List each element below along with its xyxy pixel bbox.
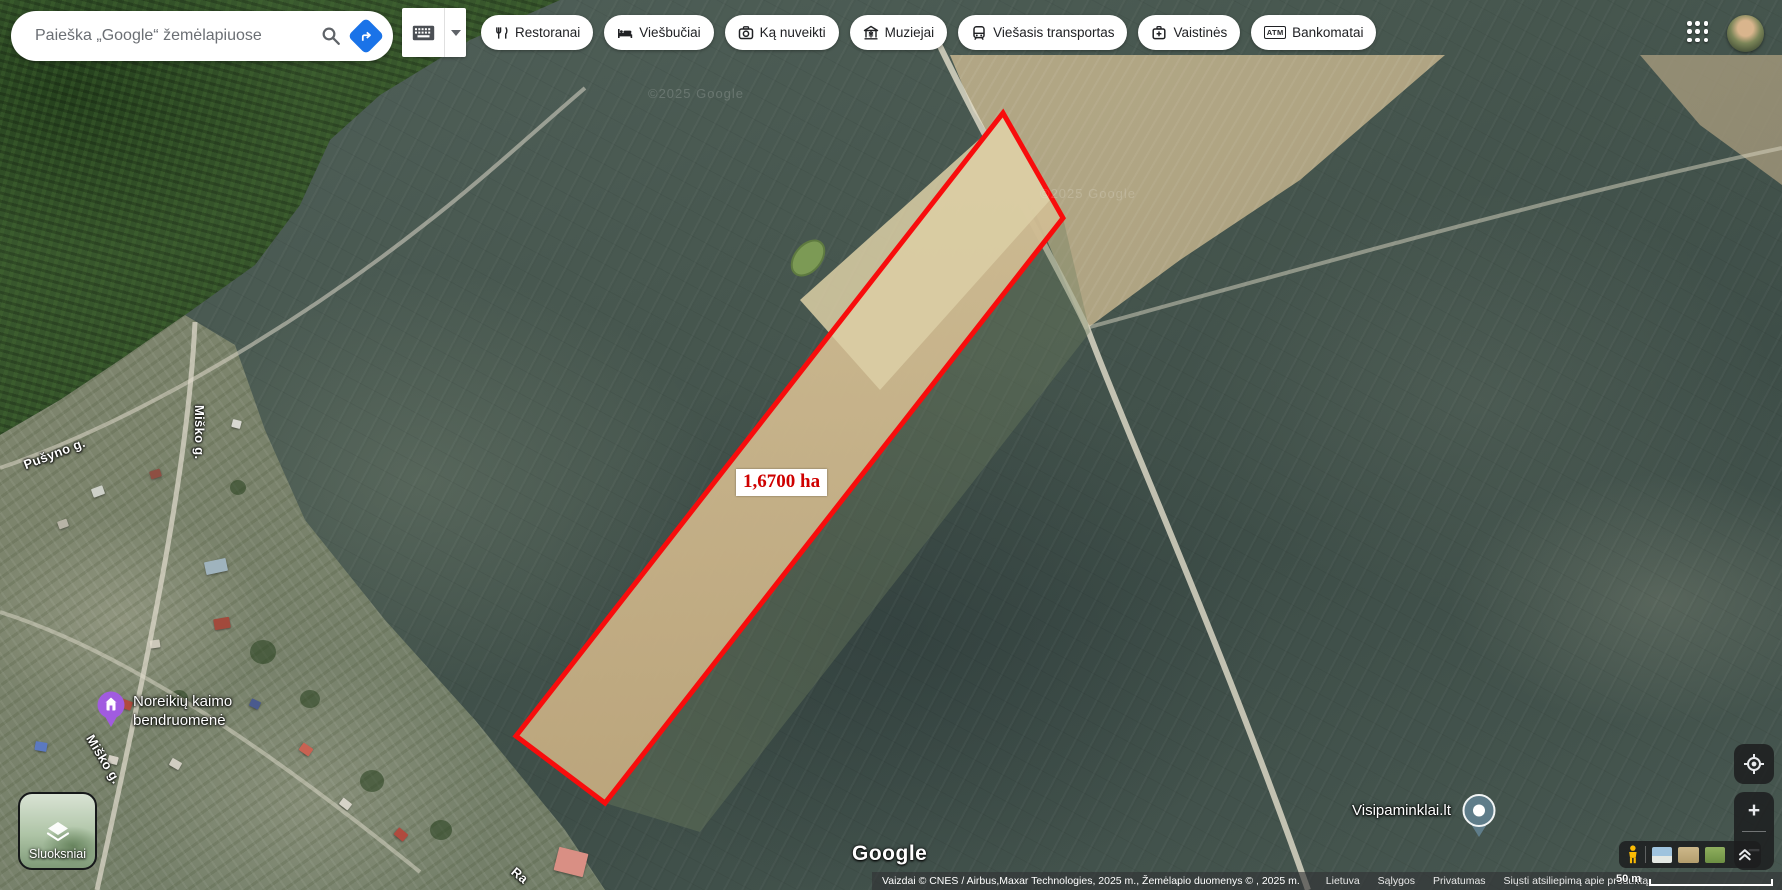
directions-button[interactable]: [348, 18, 385, 55]
chip-label: Viešasis transportas: [993, 25, 1114, 40]
keyboard-icon: [412, 25, 435, 41]
road-branch: [1086, 148, 1782, 328]
imagery-toolbar: [1619, 841, 1761, 868]
pharmacy-icon: [1151, 25, 1167, 41]
scale-bar: [1649, 879, 1773, 886]
parcel-area-label: 1,6700 ha: [736, 469, 827, 496]
chevron-down-icon: [451, 30, 461, 36]
search-bar[interactable]: Paieška „Google“ žemėlapiuose: [11, 11, 393, 61]
google-maps-app: ©2025 Google ©2025 Google 1,6700 ha Pušy…: [0, 0, 1782, 890]
apps-grid-icon: [1704, 38, 1709, 43]
chip-label: Viešbučiai: [639, 25, 700, 40]
svg-text:M: M: [868, 32, 873, 38]
keyboard-tool: [402, 8, 466, 57]
google-logo: Google: [852, 842, 927, 866]
my-location-icon: [1743, 753, 1765, 775]
chip-hotels[interactable]: Viešbučiai: [604, 15, 713, 50]
place-pin-icon[interactable]: [1460, 793, 1498, 839]
search-button[interactable]: [309, 26, 353, 46]
apps-grid-icon: [1687, 38, 1692, 43]
community-pin-icon[interactable]: [96, 691, 126, 729]
chip-museums[interactable]: M Muziejai: [850, 15, 948, 50]
chip-things-to-do[interactable]: Ką nuveikti: [725, 15, 839, 50]
search-input[interactable]: Paieška „Google“ žemėlapiuose: [11, 27, 309, 45]
poi-noreikiu[interactable]: [96, 691, 126, 734]
attribution-bar: Vaizdai © CNES / Airbus,Maxar Technologi…: [872, 872, 1782, 890]
apps-grid-icon: [1695, 21, 1700, 26]
poi-noreikiu-line2: bendruomenė: [133, 711, 232, 730]
directions-icon: [358, 28, 374, 44]
keyboard-button[interactable]: [402, 8, 445, 57]
imagery-attribution: Vaizdai © CNES / Airbus,Maxar Technologi…: [882, 875, 1300, 887]
road-misko: [97, 322, 195, 890]
scale-label: 50 m: [1616, 873, 1641, 885]
footer-link-privacy[interactable]: Privatumas: [1433, 875, 1486, 887]
chip-label: Muziejai: [885, 25, 935, 40]
apps-grid-icon: [1704, 21, 1709, 26]
restaurant-icon: [494, 25, 509, 41]
my-location-button[interactable]: [1734, 744, 1774, 784]
parcel-pond: [785, 234, 831, 281]
map-watermark: ©2025 Google: [1040, 186, 1136, 201]
road-forest-edge: [0, 88, 585, 468]
chip-label: Vaistinės: [1173, 25, 1227, 40]
layers-button[interactable]: Sluoksniai: [18, 792, 97, 870]
category-chips: Restoranai Viešbučiai Ką nuveikti: [481, 15, 1376, 50]
chip-restaurants[interactable]: Restoranai: [481, 15, 593, 50]
apps-grid-icon: [1687, 21, 1692, 26]
parcel-area-value: 1,6700 ha: [743, 471, 820, 492]
account-avatar[interactable]: [1727, 15, 1764, 52]
poi-noreikiu-label[interactable]: Noreikių kaimo bendruomenė: [133, 692, 232, 730]
poi-visipaminklai-label[interactable]: Visipaminklai.lt: [1352, 801, 1451, 820]
hotel-icon: [617, 25, 633, 41]
chip-label: Bankomatai: [1292, 25, 1363, 40]
street-label-misko-vertical[interactable]: Miško g.: [192, 405, 207, 459]
toolbar-divider: [1645, 846, 1646, 863]
search-icon: [321, 26, 341, 46]
footer-link-terms[interactable]: Sąlygos: [1378, 875, 1415, 887]
apps-grid-icon: [1704, 29, 1709, 34]
map-overlay-graphics: [0, 0, 1782, 890]
chip-label: Ką nuveikti: [760, 25, 826, 40]
camera-icon: [738, 25, 754, 41]
transit-icon: [971, 25, 987, 41]
imagery-thumbnail[interactable]: [1705, 847, 1726, 863]
collapse-chevrons-icon[interactable]: [1737, 847, 1753, 862]
keyboard-dropdown-button[interactable]: [445, 30, 466, 36]
footer-link-country[interactable]: Lietuva: [1326, 875, 1360, 887]
imagery-thumbnail[interactable]: [1678, 847, 1699, 863]
chip-atms[interactable]: ATM Bankomatai: [1251, 15, 1376, 50]
apps-grid-icon: [1695, 29, 1700, 34]
layers-label: Sluoksniai: [29, 847, 86, 861]
zoom-in-button[interactable]: +: [1734, 792, 1774, 831]
chip-pharmacies[interactable]: Vaistinės: [1138, 15, 1240, 50]
apps-grid-icon: [1687, 29, 1692, 34]
pegman-icon[interactable]: [1627, 845, 1639, 864]
museum-icon: M: [863, 25, 879, 41]
chip-public-transport[interactable]: Viešasis transportas: [958, 15, 1127, 50]
poi-visipaminklai[interactable]: [1460, 793, 1498, 844]
imagery-thumbnail[interactable]: [1652, 847, 1673, 863]
layers-icon: [45, 821, 71, 843]
google-apps-button[interactable]: [1687, 21, 1709, 43]
chip-label: Restoranai: [515, 25, 580, 40]
apps-grid-icon: [1695, 38, 1700, 43]
atm-icon: ATM: [1264, 26, 1286, 39]
map-watermark: ©2025 Google: [648, 86, 744, 101]
poi-noreikiu-line1: Noreikių kaimo: [133, 692, 232, 711]
